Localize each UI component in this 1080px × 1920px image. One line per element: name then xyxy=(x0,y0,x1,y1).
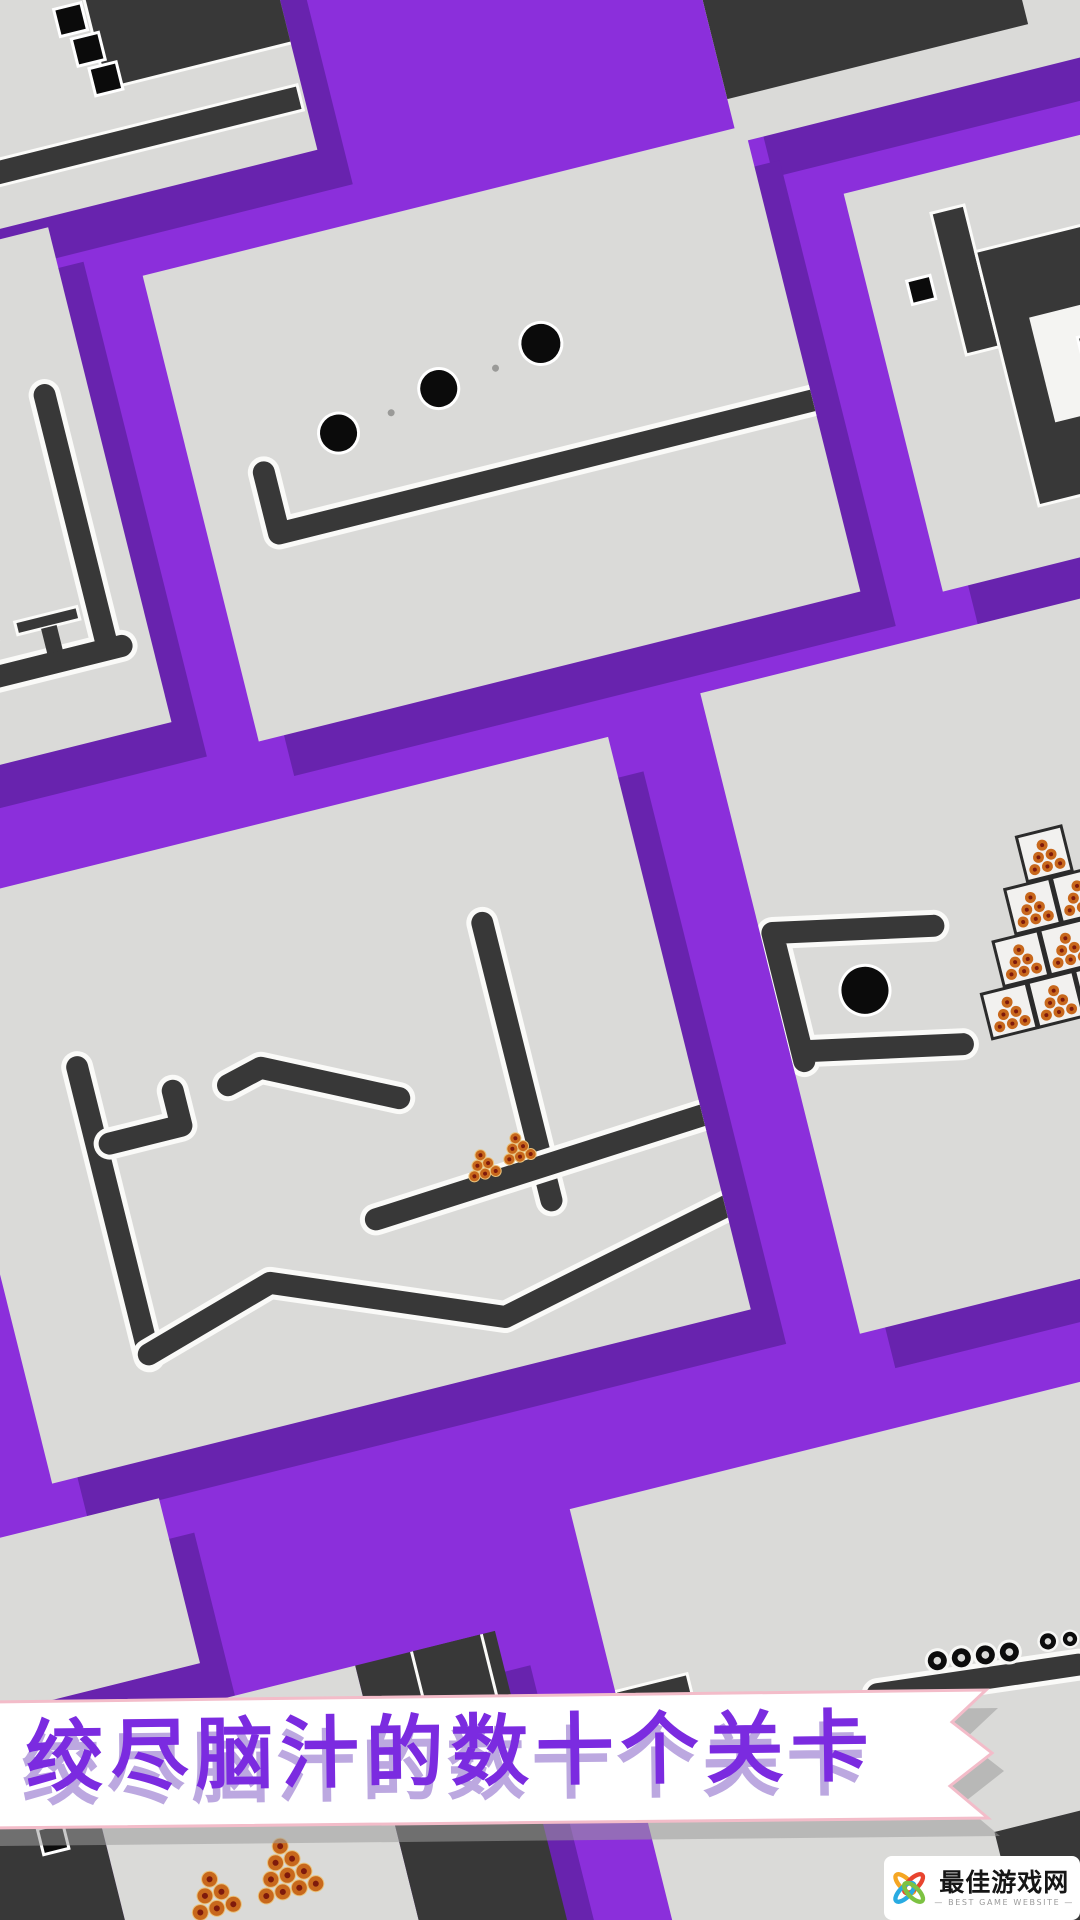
black-square xyxy=(907,275,936,304)
watermark-card: 最佳游戏网 — BEST GAME WEBSITE — xyxy=(884,1856,1080,1920)
black-square xyxy=(54,3,88,37)
banner-text: 绞尽脑汁的数十个关卡 xyxy=(25,1703,876,1803)
promo-screenshot: 绞尽脑汁的数十个关卡 绞尽脑汁的数十个关卡 最佳游戏网 — BEST GAME … xyxy=(0,0,1080,1920)
site-tagline: — BEST GAME WEBSITE — xyxy=(934,1899,1074,1907)
site-name: 最佳游戏网 xyxy=(939,1870,1069,1895)
knot-loops-icon xyxy=(890,1866,928,1910)
black-square xyxy=(89,62,123,96)
game-scene: 绞尽脑汁的数十个关卡 绞尽脑汁的数十个关卡 xyxy=(0,0,1080,1920)
black-square xyxy=(71,32,105,66)
promo-banner: 绞尽脑汁的数十个关卡 绞尽脑汁的数十个关卡 xyxy=(0,1690,1004,1846)
